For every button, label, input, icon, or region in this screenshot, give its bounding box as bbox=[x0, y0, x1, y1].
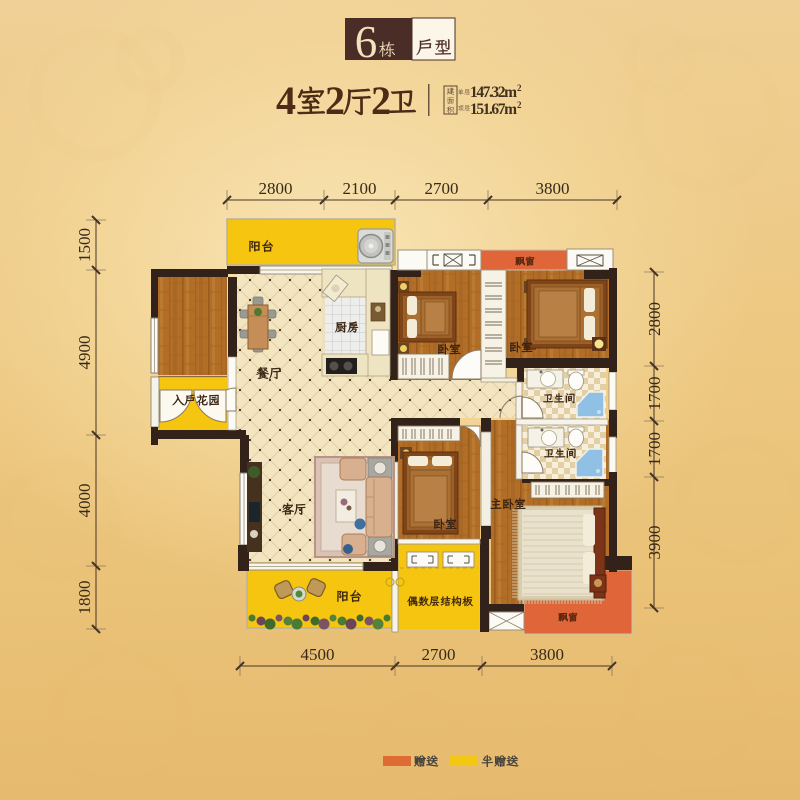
svg-text:6: 6 bbox=[355, 17, 378, 67]
svg-text:4500: 4500 bbox=[301, 645, 335, 664]
svg-text:1500: 1500 bbox=[75, 228, 94, 262]
svg-text:3800: 3800 bbox=[536, 179, 570, 198]
svg-text:2800: 2800 bbox=[645, 302, 664, 336]
svg-text:1700: 1700 bbox=[645, 377, 664, 411]
svg-text:2: 2 bbox=[517, 83, 522, 93]
svg-text:2: 2 bbox=[517, 100, 522, 110]
svg-text:2700: 2700 bbox=[422, 645, 456, 664]
svg-text:2800: 2800 bbox=[259, 179, 293, 198]
svg-text:3800: 3800 bbox=[530, 645, 564, 664]
svg-text:147.32m: 147.32m bbox=[470, 84, 517, 101]
svg-text:4900: 4900 bbox=[75, 336, 94, 370]
svg-text:2700: 2700 bbox=[425, 179, 459, 198]
svg-text:1700: 1700 bbox=[645, 432, 664, 466]
svg-text:4: 4 bbox=[276, 78, 296, 123]
svg-text:3900: 3900 bbox=[645, 526, 664, 560]
svg-text:2: 2 bbox=[371, 78, 391, 123]
svg-text:2: 2 bbox=[325, 78, 345, 123]
svg-text:4000: 4000 bbox=[75, 484, 94, 518]
svg-text:2100: 2100 bbox=[343, 179, 377, 198]
svg-text:1800: 1800 bbox=[75, 581, 94, 615]
svg-text:151.67m: 151.67m bbox=[470, 101, 517, 118]
